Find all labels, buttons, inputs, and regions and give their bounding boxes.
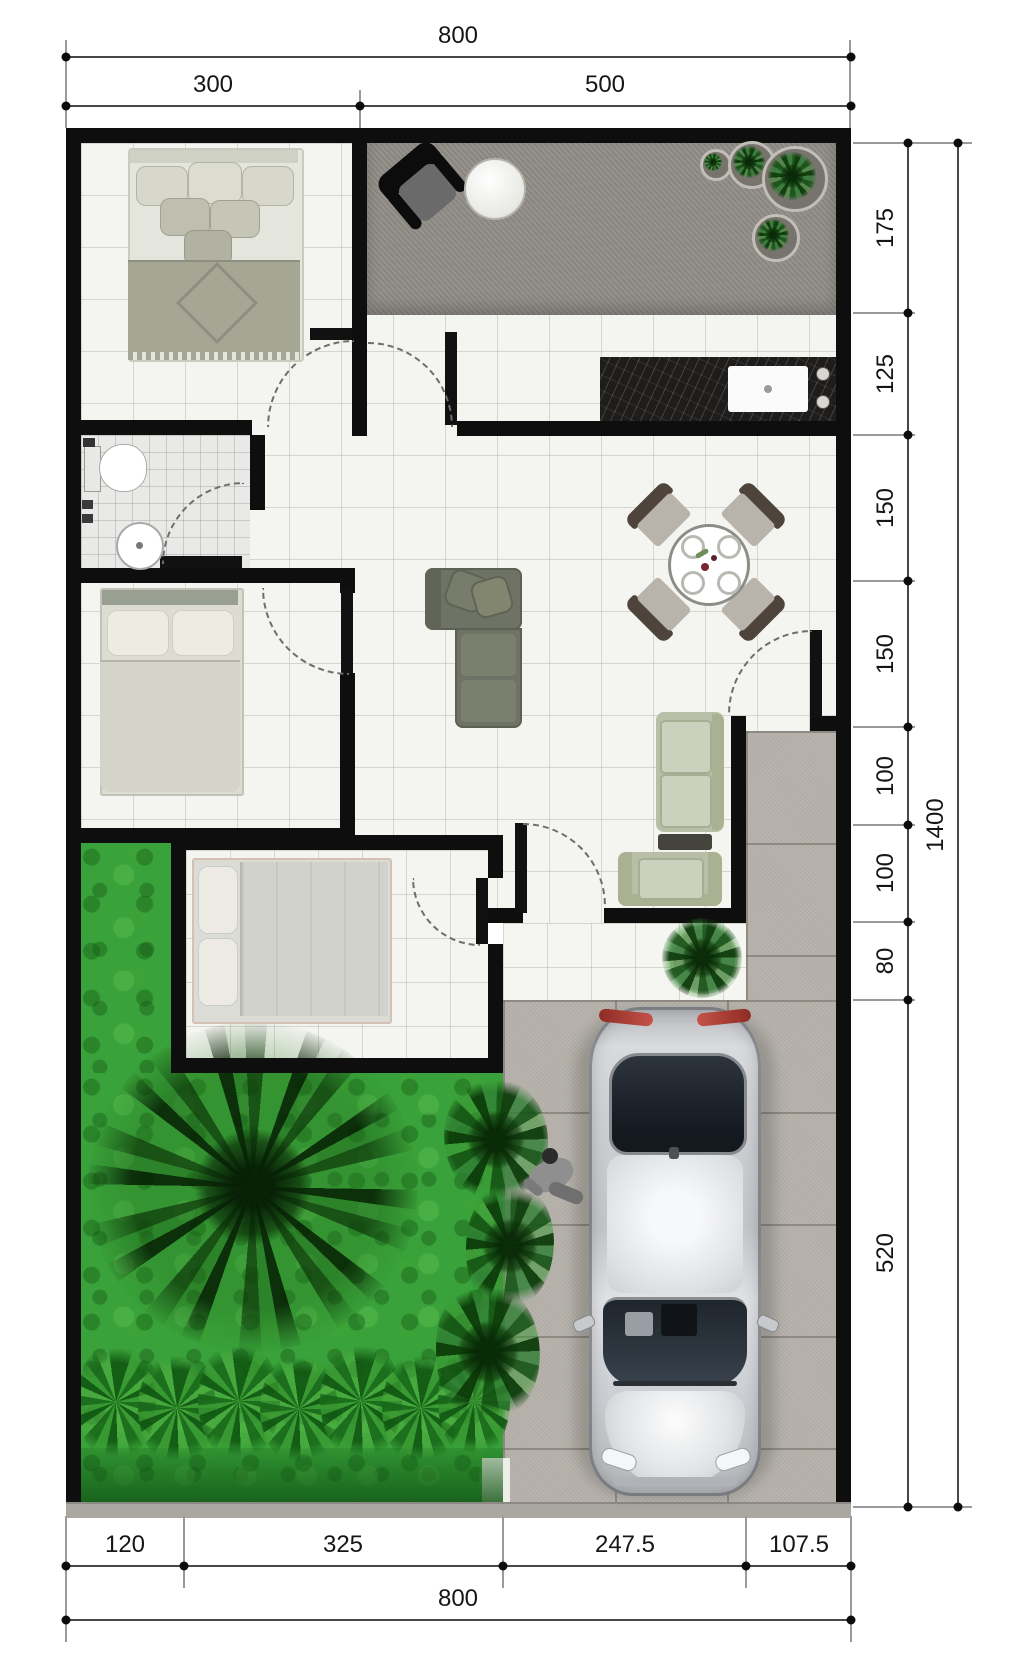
armchair-icon (618, 852, 722, 906)
bed-blanket (240, 862, 388, 1016)
dining-table-icon (668, 524, 750, 606)
chair-cushion (638, 858, 704, 900)
wall-left (66, 128, 81, 1502)
dim-label-right-seg: 520 (872, 1233, 900, 1273)
dimension-line-top-total (66, 56, 851, 58)
dimension-line-right-total (957, 143, 959, 1507)
wall-front-right (604, 908, 746, 923)
bath-fixture (83, 438, 95, 447)
wall-bedroom1-terrace (352, 143, 367, 436)
table-decor (711, 555, 717, 561)
kitchen-counter-icon (600, 357, 836, 421)
wall-top (66, 128, 851, 143)
dim-tick (847, 102, 856, 111)
toilet-icon (84, 444, 146, 492)
dim-tick (904, 309, 913, 318)
door-leaf-bedroom1 (310, 328, 352, 340)
plant-leaves (704, 153, 722, 171)
plant-leaves (768, 152, 816, 200)
dim-tick (904, 431, 913, 440)
bed-headboard (102, 590, 238, 605)
basin-drain (136, 542, 143, 549)
car-antenna (669, 1147, 679, 1159)
dim-tick (904, 821, 913, 830)
ornamental-plant-icon (436, 1282, 540, 1422)
sofa-cushion (461, 634, 516, 676)
dim-tick (62, 1562, 71, 1571)
washbasin-icon (116, 522, 164, 570)
plate (717, 535, 741, 559)
car-roof (607, 1155, 743, 1293)
floor-plan-canvas: 800 300 500 175 125 150 150 100 100 80 5… (0, 0, 1024, 1669)
wall-bedroom2-right-lower (340, 673, 355, 843)
dim-label-right-seg: 175 (872, 208, 900, 248)
dim-tick (356, 102, 365, 111)
person-head (542, 1148, 558, 1164)
table-decor (701, 563, 709, 571)
wall-bedroom1-bottom (66, 420, 252, 435)
plate (681, 571, 705, 595)
dim-tick (847, 1616, 856, 1625)
wall-bedroom3-top (171, 835, 503, 850)
dim-label-right-seg: 80 (872, 948, 900, 975)
dim-label-bottom-seg: 325 (323, 1531, 363, 1559)
plant-leaves (733, 146, 765, 178)
dim-tick (62, 102, 71, 111)
dimension-line-bottom-total (66, 1619, 851, 1621)
car-wiper-line (613, 1381, 737, 1386)
l-sofa-icon (425, 568, 522, 728)
dim-tick (62, 53, 71, 62)
dim-label-right-seg: 100 (872, 756, 900, 796)
dim-tick (847, 53, 856, 62)
car-windshield (603, 1297, 747, 1386)
sofa-cushion (660, 774, 712, 828)
wall-carport-notch-horizontal (810, 716, 836, 731)
dim-label-top-seg: 300 (193, 71, 233, 99)
wall-bedroom3-right-lower (488, 944, 503, 1073)
potted-plant-icon (762, 146, 828, 212)
faucet-knob (816, 395, 830, 409)
dim-label-top-seg: 500 (585, 71, 625, 99)
shower-fitting (82, 500, 93, 509)
dim-label-bottom-seg: 120 (105, 1531, 145, 1559)
wall-bathroom-right (250, 435, 265, 510)
bed-blanket (100, 660, 240, 792)
dim-label-right-total: 1400 (922, 798, 950, 851)
dim-label-right-seg: 150 (872, 488, 900, 528)
dim-label-bottom-total: 800 (438, 1585, 478, 1613)
dim-label-top-total: 800 (438, 22, 478, 50)
chair-arm (618, 852, 632, 906)
pillow (198, 866, 238, 934)
car-rear-window (609, 1053, 747, 1155)
toilet-bowl (99, 444, 147, 492)
dim-label-right-seg: 100 (872, 853, 900, 893)
pillow (172, 610, 234, 656)
bed-double-icon (128, 148, 304, 362)
bed-double-icon (192, 858, 392, 1024)
coffee-table-icon (658, 834, 712, 850)
sofa-two-seat-icon (656, 712, 724, 832)
dashboard-item (661, 1304, 697, 1336)
extension-line (745, 1516, 747, 1588)
wall-bedroom3-right-upper (488, 850, 503, 878)
dim-tick (954, 139, 963, 148)
car-icon (583, 1003, 767, 1500)
sofa-cushion (660, 720, 712, 774)
terrace-table-icon (464, 158, 526, 220)
car-bumper (613, 1477, 737, 1486)
potted-plant-icon (752, 214, 800, 262)
dim-label-right-seg: 150 (872, 634, 900, 674)
faucet-knob (816, 367, 830, 381)
dim-tick (954, 1503, 963, 1512)
dim-tick (180, 1562, 189, 1571)
dim-tick (904, 1503, 913, 1512)
chair-arm (708, 852, 722, 906)
dim-tick (904, 723, 913, 732)
dim-tick (742, 1562, 751, 1571)
dim-tick (904, 918, 913, 927)
dim-tick (62, 1616, 71, 1625)
dim-tick (904, 139, 913, 148)
dimension-line-top-segments (66, 105, 851, 107)
sink-drain (764, 385, 772, 393)
blanket-fringe (128, 350, 300, 360)
sofa-cushion (461, 680, 516, 722)
plant-leaves (662, 918, 742, 998)
wall-right (836, 128, 851, 1502)
dim-tick (499, 1562, 508, 1571)
extension-line (183, 1516, 185, 1588)
extension-line (502, 1516, 504, 1588)
sofa-armrest (425, 568, 441, 630)
dashboard-item (625, 1312, 653, 1336)
dim-tick (904, 996, 913, 1005)
wall-bedroom3-left (171, 835, 186, 1073)
dim-tick (847, 1562, 856, 1571)
person-legs (547, 1180, 586, 1206)
plant-leaves (757, 219, 789, 251)
shower-fitting (82, 514, 93, 523)
wall-bathroom-bottom (66, 568, 355, 583)
plate (717, 571, 741, 595)
pillow (107, 610, 169, 656)
dim-label-bottom-seg: 247.5 (595, 1531, 655, 1559)
sofa-back (712, 714, 724, 830)
wall-carport-notch-vertical (731, 716, 746, 923)
pillow (198, 938, 238, 1006)
person-figure-icon (520, 1138, 590, 1238)
dim-label-right-seg: 125 (872, 354, 900, 394)
wall-bedroom3-bottom (171, 1058, 503, 1073)
wall-kitchen-bottom (457, 421, 836, 436)
dim-tick (904, 577, 913, 586)
dim-label-bottom-seg: 107.5 (769, 1531, 829, 1559)
kitchen-sink (728, 366, 808, 412)
bed-double-icon (100, 588, 244, 796)
